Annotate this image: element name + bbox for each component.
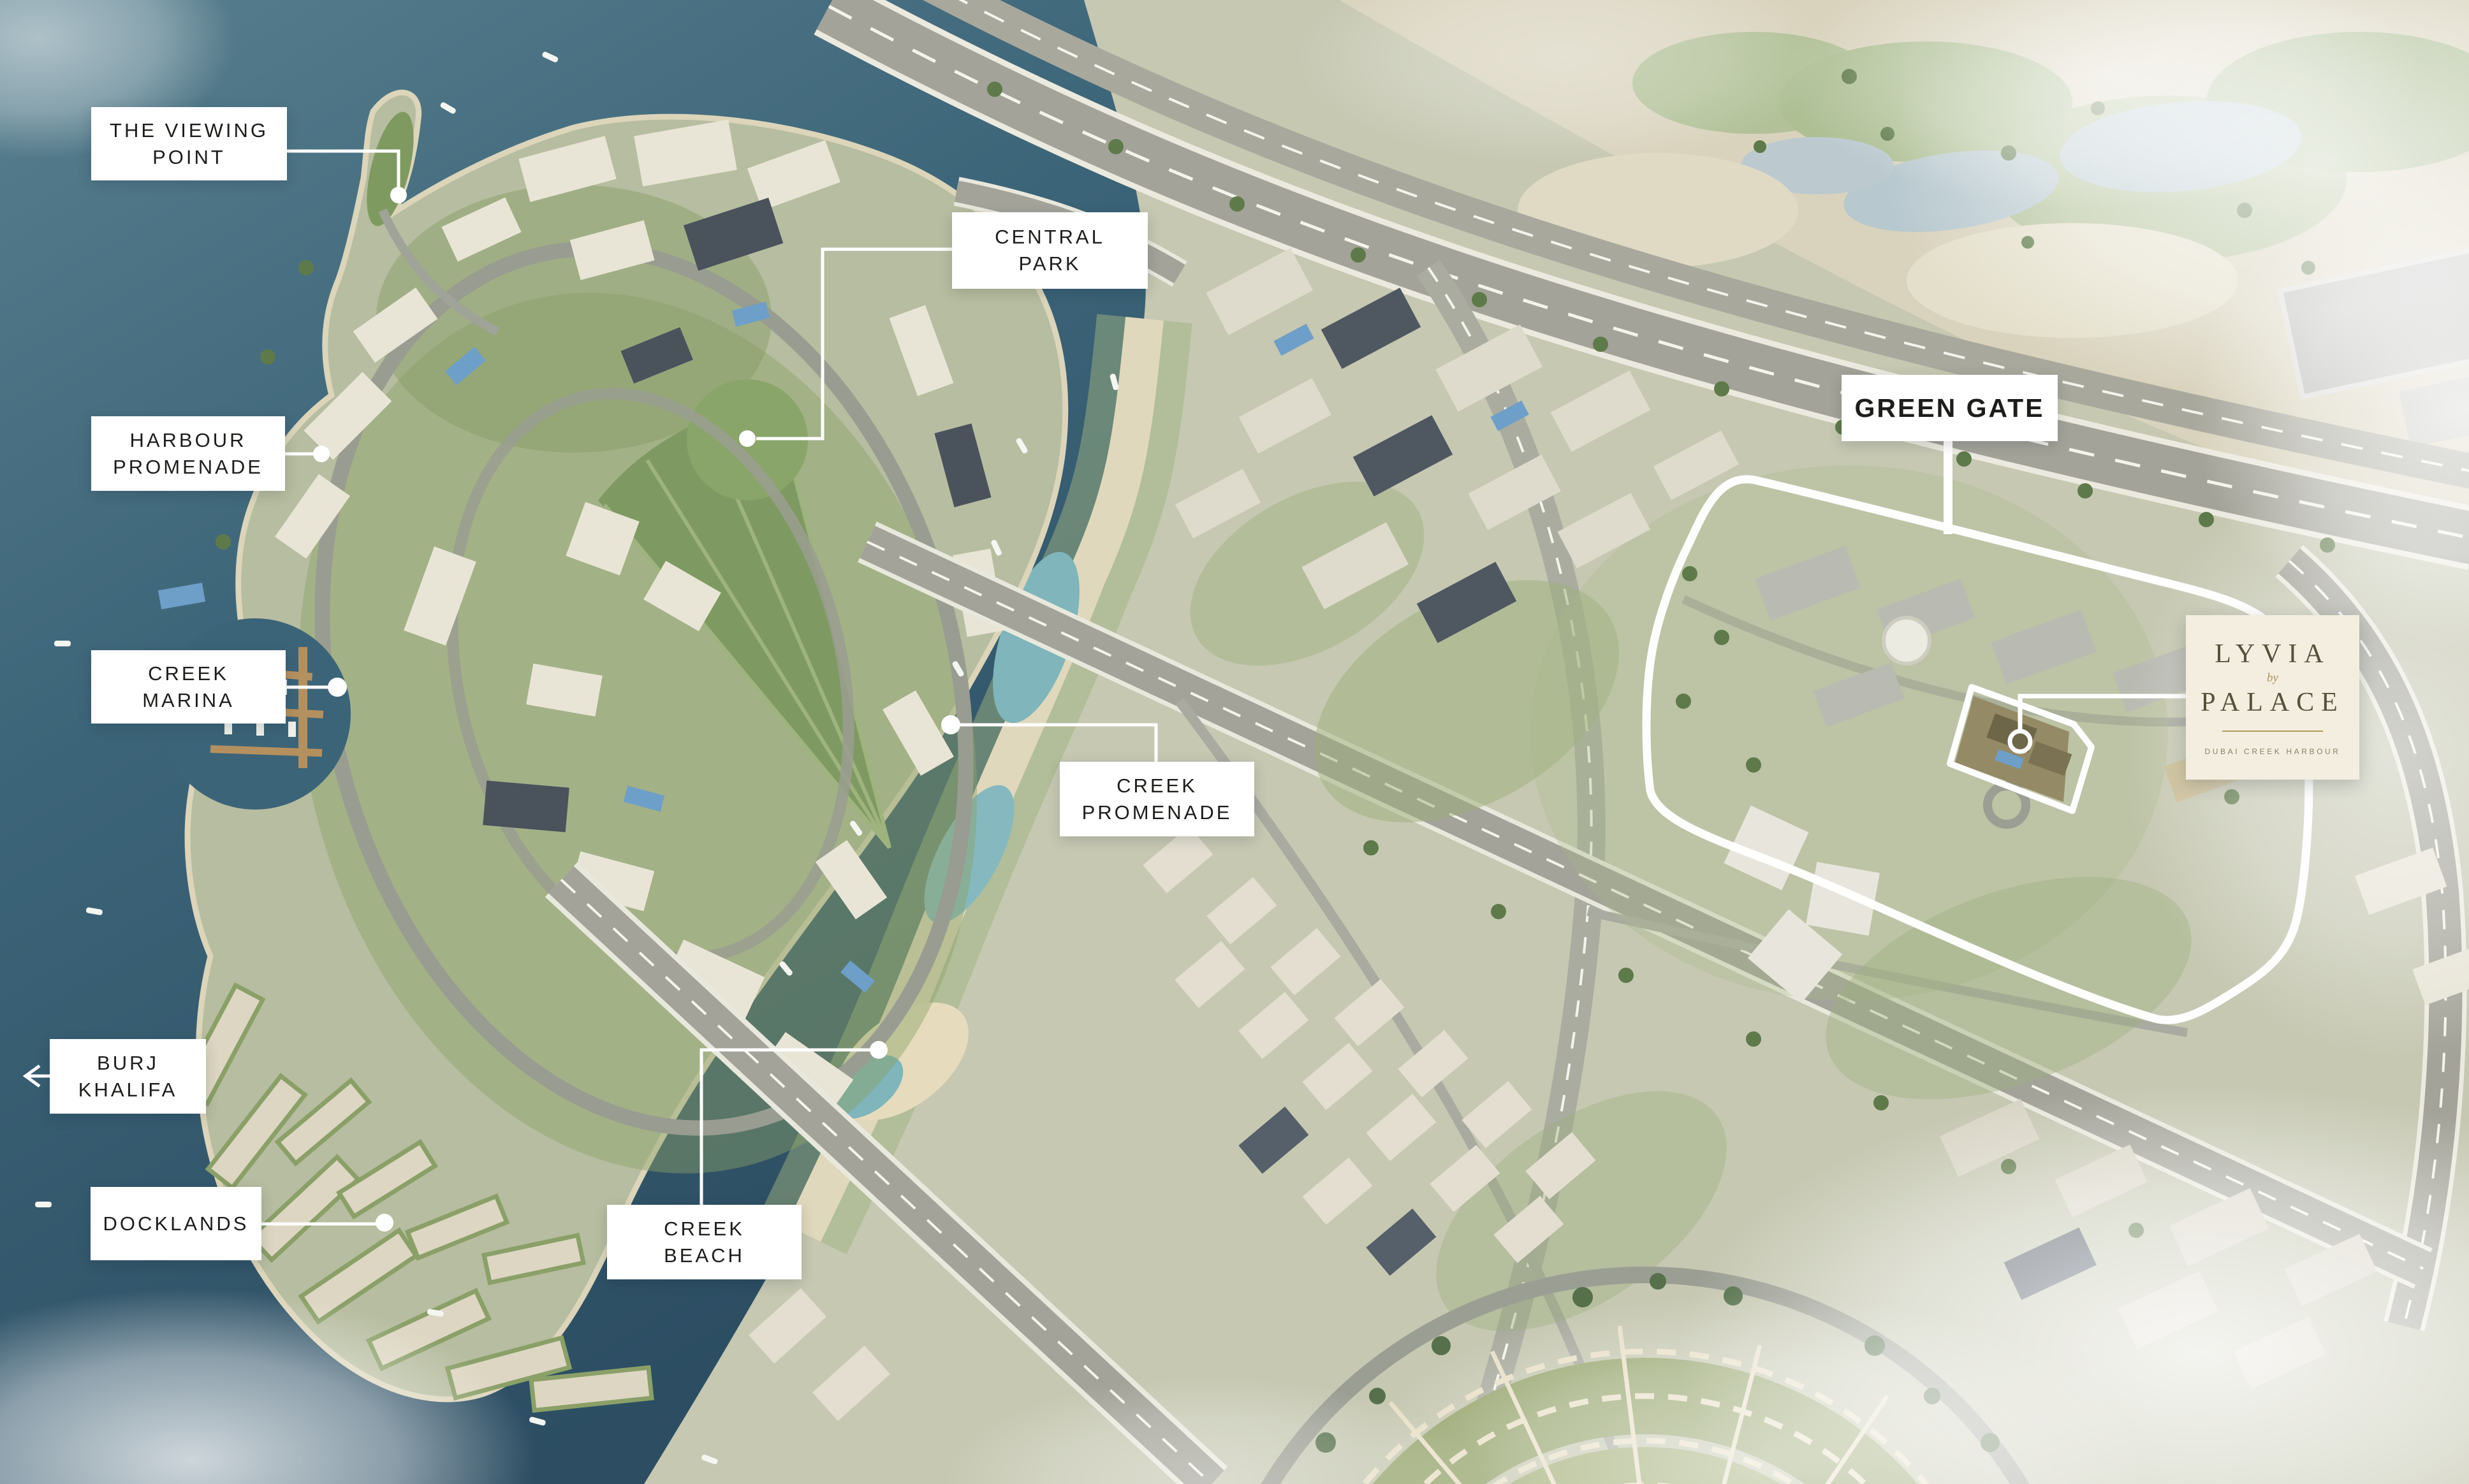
map-label-docklands: DOCKLANDS (91, 1187, 261, 1260)
map-label-viewing-point: THE VIEWING POINT (91, 107, 287, 180)
label-line: PARK (1018, 251, 1081, 277)
logo-brand-top: LYVIA (2215, 639, 2330, 669)
dot-creek-marina (328, 678, 347, 697)
map-label-central-park: CENTRAL PARK (952, 212, 1148, 289)
map-label-creek-beach: CREEK BEACH (607, 1205, 802, 1279)
label-line: GREEN GATE (1854, 395, 2044, 421)
label-line: CREEK (1117, 773, 1198, 799)
label-line: BEACH (664, 1242, 745, 1269)
dot-central-park (739, 430, 756, 447)
label-line: PROMENADE (113, 454, 263, 481)
label-line: DOCKLANDS (103, 1211, 249, 1237)
masterplan-map: { "map": { "kind": "aerial-masterplan", … (0, 0, 2469, 1484)
label-line: KHALIFA (78, 1077, 178, 1103)
map-label-green-gate: GREEN GATE (1842, 375, 2058, 441)
map-label-burj-khalifa: BURJ KHALIFA (50, 1039, 206, 1114)
label-line: CREEK (148, 660, 229, 687)
map-label-creek-marina: CREEK MARINA (91, 650, 286, 724)
label-line: CREEK (664, 1216, 745, 1242)
dot-creek-promenade (941, 715, 960, 734)
label-line: MARINA (142, 687, 235, 714)
logo-brand-connector: by (2267, 671, 2278, 686)
label-line: HARBOUR (129, 427, 246, 454)
label-line: THE VIEWING (110, 117, 268, 144)
terrain (0, 0, 2469, 1484)
label-line: POINT (152, 144, 226, 171)
dot-harbour-promenade (313, 446, 330, 462)
dot-viewing-point (390, 187, 407, 203)
logo-subtitle: DUBAI CREEK HARBOUR (2204, 747, 2340, 756)
label-line: PROMENADE (1082, 799, 1233, 826)
label-line: BURJ (97, 1050, 159, 1077)
logo-divider (2222, 731, 2323, 732)
lyvia-palace-logo-card: LYVIA by PALACE DUBAI CREEK HARBOUR (2186, 615, 2359, 780)
dot-docklands (376, 1214, 393, 1232)
dot-creek-beach (870, 1041, 888, 1059)
logo-brand-bottom: PALACE (2201, 687, 2345, 718)
map-label-harbour-promenade: HARBOUR PROMENADE (91, 416, 285, 491)
map-render (0, 0, 2469, 1484)
label-line: CENTRAL (995, 224, 1105, 251)
map-label-creek-promenade: CREEK PROMENADE (1060, 762, 1254, 836)
